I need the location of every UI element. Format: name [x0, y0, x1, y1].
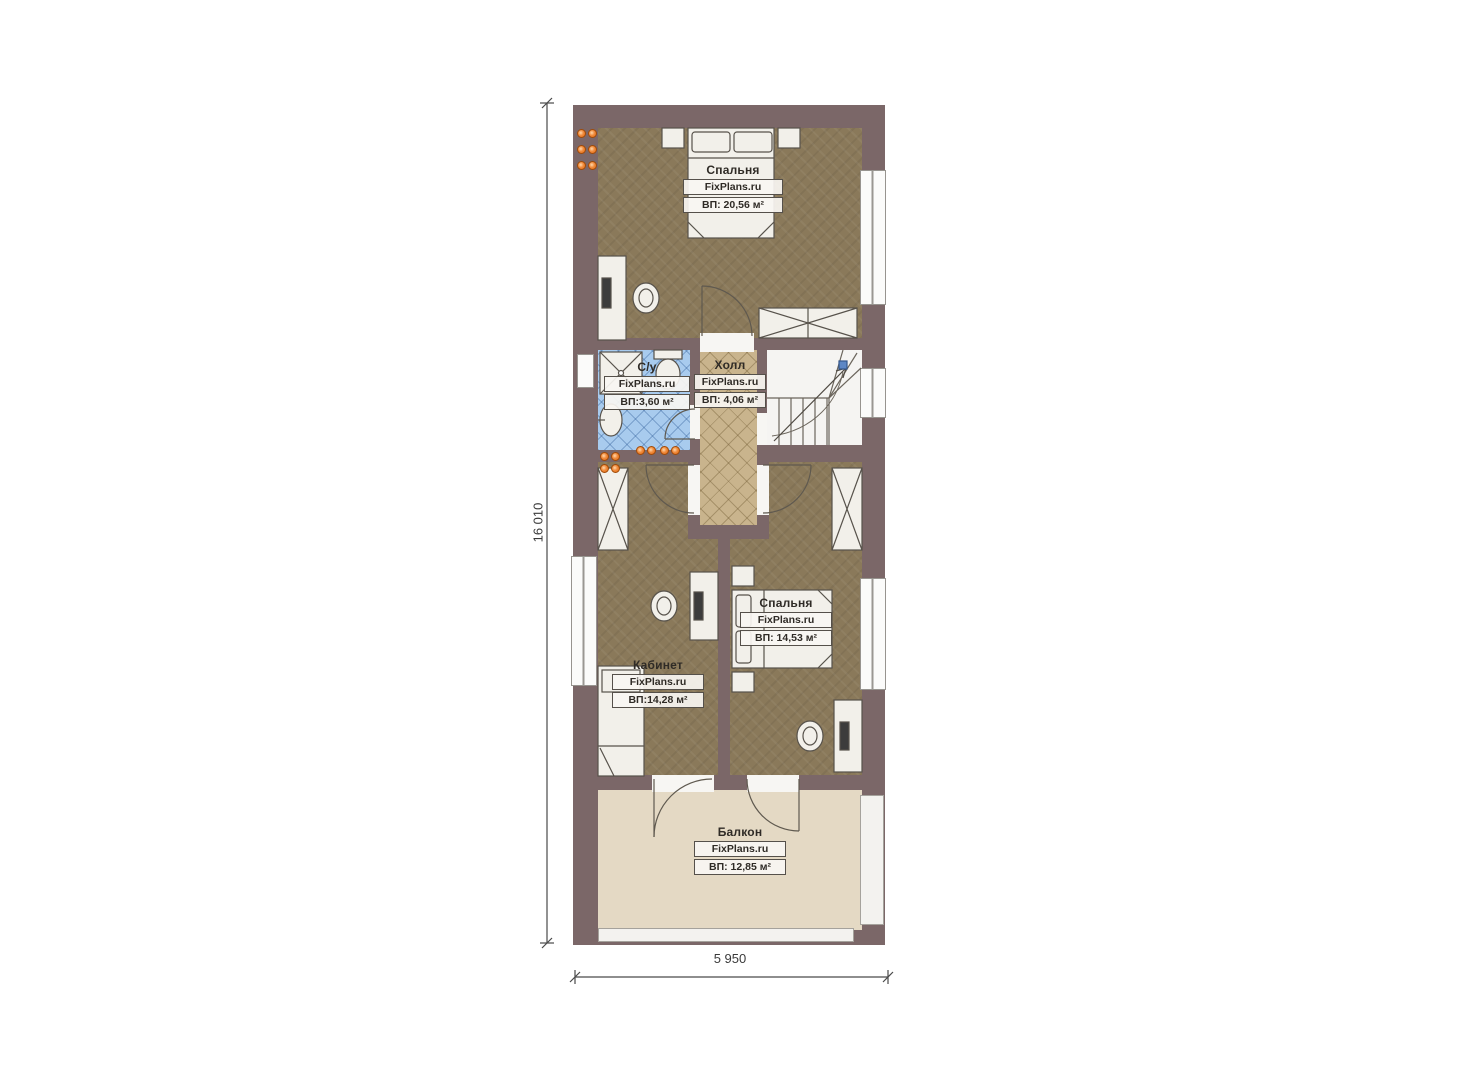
door-opening — [690, 405, 700, 439]
door-opening — [700, 333, 754, 352]
area-label: ВП: 12,85 м² — [694, 859, 786, 875]
room-label-office: Кабинет FixPlans.ru ВП:14,28 м² — [612, 658, 704, 708]
brand-label: FixPlans.ru — [604, 376, 690, 392]
door-opening — [652, 775, 714, 792]
stairwell-area — [767, 350, 862, 445]
brand-label: FixPlans.ru — [612, 674, 704, 690]
radiator-icon — [600, 452, 620, 461]
dimension-height-label: 16 010 — [531, 488, 546, 558]
door-opening — [688, 465, 700, 515]
radiator-icon — [577, 129, 597, 138]
radiator-icon — [600, 464, 620, 473]
window — [571, 556, 597, 686]
room-label-hall: Холл FixPlans.ru ВП: 4,06 м² — [694, 358, 766, 408]
room-name: Балкон — [694, 825, 786, 839]
balcony-railing-right — [860, 795, 884, 925]
door-opening — [757, 413, 767, 445]
radiator-icon — [636, 446, 656, 455]
area-label: ВП:14,28 м² — [612, 692, 704, 708]
room-floor-bedroom-top — [598, 128, 862, 338]
window — [860, 368, 886, 418]
door-opening — [757, 465, 769, 515]
room-label-balcony: Балкон FixPlans.ru ВП: 12,85 м² — [694, 825, 786, 875]
room-label-bedroom-top: Спальня FixPlans.ru ВП: 20,56 м² — [683, 163, 783, 213]
dimension-width-label: 5 950 — [690, 951, 770, 966]
radiator-icon — [577, 145, 597, 154]
dividing-wall — [718, 525, 730, 777]
brand-label: FixPlans.ru — [694, 374, 766, 390]
radiator-icon — [660, 446, 680, 455]
floor-plan: Спальня FixPlans.ru ВП: 20,56 м² С/у Fix… — [0, 0, 1474, 1080]
room-name: С/у — [604, 360, 690, 374]
room-label-bathroom: С/у FixPlans.ru ВП:3,60 м² — [604, 360, 690, 410]
balcony-railing-bottom — [598, 928, 854, 942]
radiator-icon — [577, 161, 597, 170]
area-label: ВП:3,60 м² — [604, 394, 690, 410]
brand-label: FixPlans.ru — [694, 841, 786, 857]
area-label: ВП: 20,56 м² — [683, 197, 783, 213]
room-name: Холл — [694, 358, 766, 372]
window — [860, 170, 886, 305]
room-name: Кабинет — [612, 658, 704, 672]
room-name: Спальня — [740, 596, 832, 610]
area-label: ВП: 14,53 м² — [740, 630, 832, 646]
brand-label: FixPlans.ru — [683, 179, 783, 195]
fixture-box — [577, 354, 594, 388]
window — [860, 578, 886, 690]
room-label-bedroom-lower: Спальня FixPlans.ru ВП: 14,53 м² — [740, 596, 832, 646]
door-opening — [747, 775, 799, 792]
area-label: ВП: 4,06 м² — [694, 392, 766, 408]
room-name: Спальня — [683, 163, 783, 177]
brand-label: FixPlans.ru — [740, 612, 832, 628]
